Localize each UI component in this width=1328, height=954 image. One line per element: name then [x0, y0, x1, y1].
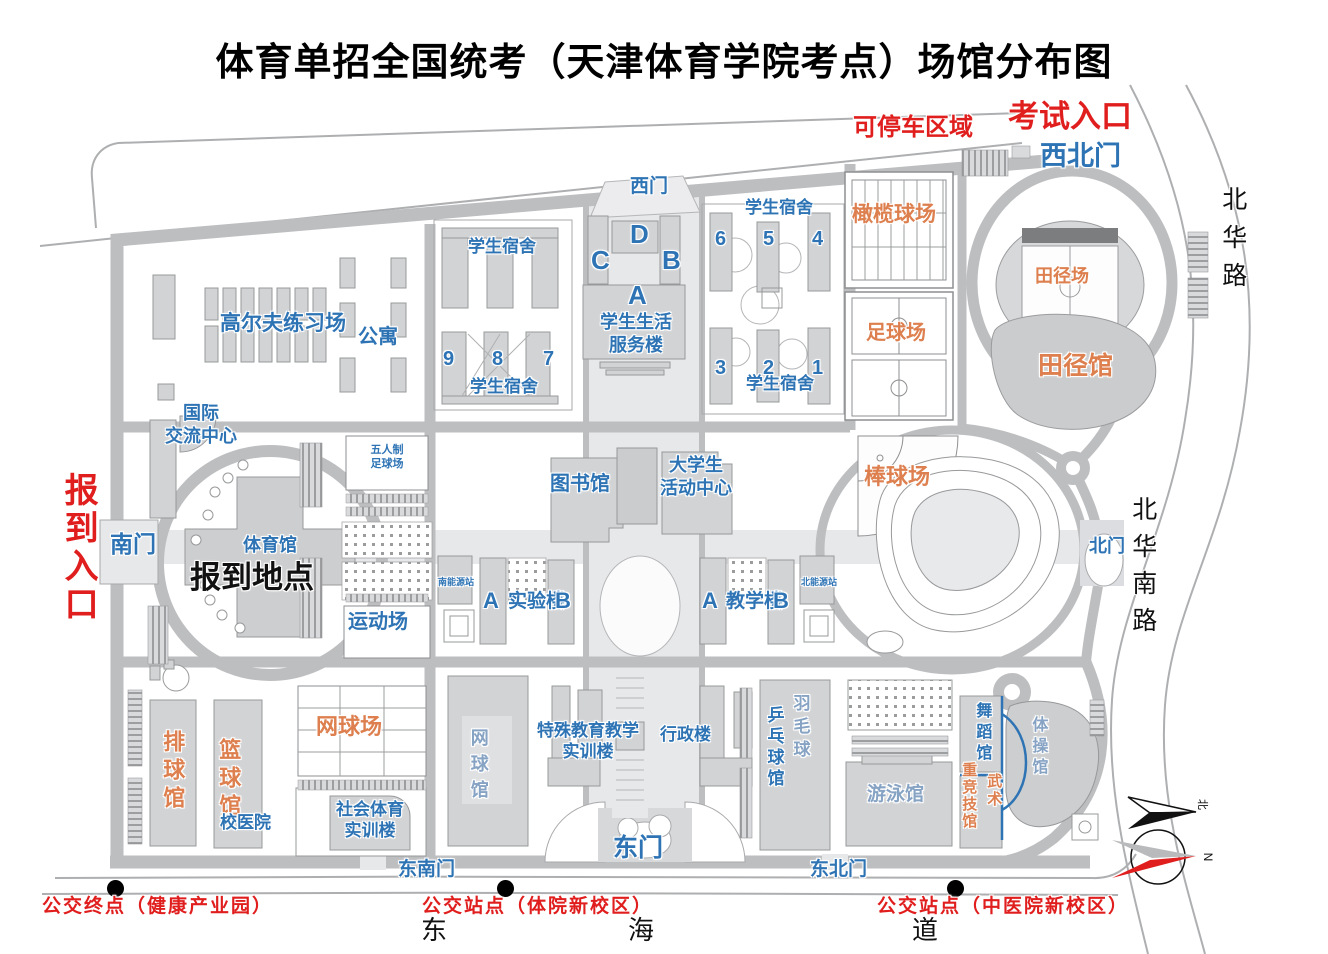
gate-northeast-label: 东北门 [810, 859, 867, 881]
gymnasium-label: 体育馆 [243, 535, 297, 556]
apartment-label: 公寓 [358, 326, 398, 349]
donghai-road-char-hai: 海 [628, 916, 654, 946]
lab-building-a: A [483, 588, 499, 613]
baseball-field-label: 棒球场 [864, 464, 930, 489]
dorm-label-nw: 学生宿舍 [468, 237, 536, 257]
sports-ground-label: 运动场 [348, 611, 408, 634]
intl-exchange-center-label: 国际 交流中心 [146, 402, 256, 447]
student-activity-center-label: 大学生 活动中心 [653, 454, 739, 499]
bus-stop-marker-zhongyi [947, 880, 964, 897]
compass-n-label: N [1200, 853, 1214, 862]
dorm-number-3: 3 [715, 357, 726, 380]
tennis-courts-label: 网球场 [316, 714, 382, 739]
central-lawn [600, 556, 680, 656]
library-label: 图书馆 [550, 473, 610, 496]
dorm-number-5: 5 [763, 228, 774, 251]
gate-north-label: 北门 [1089, 536, 1125, 557]
bus-stop-zhongyi-label: 公交站点（中医院新校区） [877, 896, 1129, 918]
gymnastics-hall-label: 体操馆 [1028, 716, 1046, 779]
volleyball-hall-label: 排球馆 [160, 730, 185, 814]
basketball-hall-label: 篮球馆 [216, 738, 241, 822]
badminton-label: 羽毛球 [790, 694, 810, 763]
table-tennis-hall-label: 乒乓球馆 [764, 706, 784, 790]
admin-building-label: 行政楼 [660, 725, 711, 745]
bus-stop-marker-tiyuan [497, 880, 514, 897]
social-sports-training-label: 社会体育 实训楼 [320, 799, 420, 842]
bus-stop-marker-terminal [107, 880, 124, 897]
gate-northwest-label: 西北门 [1040, 141, 1121, 172]
dorm-label-se: 学生宿舍 [746, 374, 814, 394]
gate-east-label: 东门 [613, 834, 663, 863]
teaching-building-a: A [702, 588, 718, 613]
heavy-athletics-hall-label: 重竞技馆 [960, 762, 977, 830]
bus-stop-tiyuan-label: 公交站点（体院新校区） [422, 896, 653, 918]
gate-southeast-label: 东南门 [398, 859, 455, 881]
teaching-building-b: B [773, 588, 789, 613]
dorm-number-2: 2 [763, 357, 774, 380]
checkin-entrance-label: 报到入口 [58, 472, 97, 624]
south-energy-station-label: 南能源站 [438, 577, 474, 587]
gate-south-label: 南门 [110, 531, 156, 557]
clinic-label: 校医院 [220, 813, 271, 833]
service-block-a: A [628, 281, 647, 311]
rugby-field-label: 橄榄球场 [852, 203, 936, 227]
beihua-road-label: 北华路 [1218, 186, 1247, 300]
service-block-c: C [591, 246, 610, 276]
tennis-hall-label: 网球馆 [468, 728, 489, 806]
futsal-field-label: 五人制 足球场 [352, 444, 422, 472]
donghai-road-char-dong: 东 [421, 916, 447, 946]
dorm-number-6: 6 [715, 228, 726, 251]
golf-range-label: 高尔夫练习场 [220, 312, 346, 336]
dorm-label-ne: 学生宿舍 [745, 198, 813, 218]
student-service-center-label: 学生生活 服务楼 [596, 311, 676, 356]
track-hall-label: 田径馆 [1038, 352, 1113, 381]
dance-hall-label: 舞蹈馆 [972, 702, 990, 765]
dorm-number-7: 7 [543, 348, 554, 371]
special-education-label: 特殊教育教学 实训楼 [528, 720, 648, 763]
dorm-number-8: 8 [492, 348, 503, 371]
beihua-south-road-label: 北华南路 [1128, 496, 1157, 644]
wushu-label: 武术 [985, 773, 1002, 809]
compass-north-char: 北 [1195, 799, 1208, 810]
donghai-road-char-dao: 道 [912, 916, 938, 946]
bus-terminal-label: 公交终点（健康产业园） [42, 896, 273, 918]
dorm-number-9: 9 [443, 348, 454, 371]
campus-map: 体育单招全国统考（天津体育学院考点）场馆分布图 可停车区域 考试入口 报到入口 … [0, 0, 1328, 954]
checkin-location-label: 报到地点 [190, 560, 314, 596]
service-block-b: B [662, 246, 681, 276]
parking-zone-label: 可停车区域 [853, 114, 973, 142]
dorm-number-4: 4 [812, 228, 823, 251]
exam-entrance-label: 考试入口 [1008, 99, 1132, 135]
dorm-label-sw: 学生宿舍 [470, 377, 538, 397]
dorm-number-1: 1 [812, 357, 823, 380]
soccer-field-label: 足球场 [866, 322, 926, 345]
page-title: 体育单招全国统考（天津体育学院考点）场馆分布图 [215, 42, 1112, 86]
gate-west-label: 西门 [630, 176, 668, 198]
service-block-d: D [630, 220, 649, 250]
north-energy-station-label: 北能源站 [801, 577, 837, 587]
track-field-label: 田径场 [1035, 266, 1089, 287]
swimming-hall-label: 游泳馆 [867, 784, 924, 806]
lab-building-b: B [555, 588, 571, 613]
